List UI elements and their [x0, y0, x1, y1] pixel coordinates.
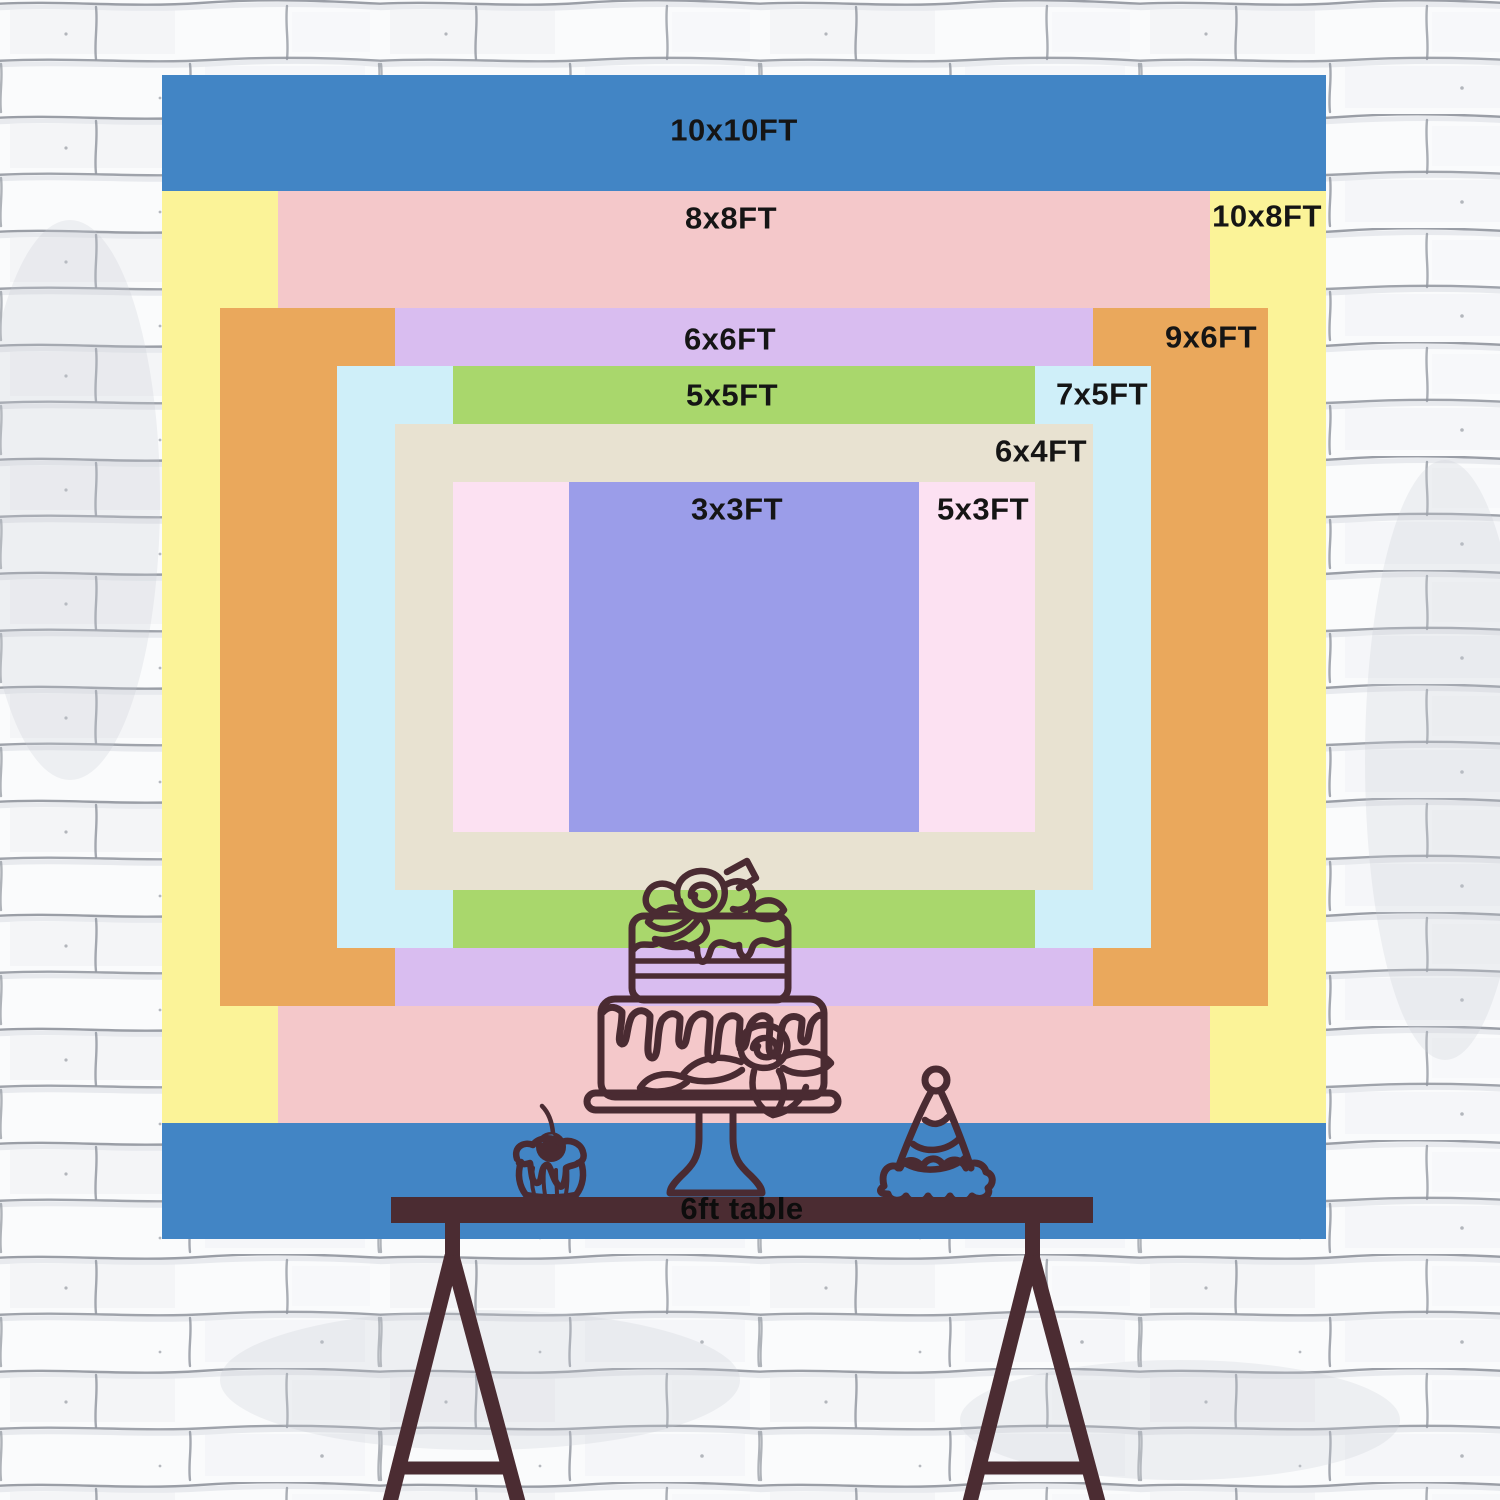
backdrop-size-chart: 10x10FT10x8FT8x8FT9x6FT6x6FT7x5FT5x5FT6x… — [0, 0, 1500, 1500]
table-size-label: 6ft table — [391, 1194, 1093, 1224]
cake-stand-stem — [670, 1110, 762, 1193]
cherry-stem — [542, 1106, 553, 1133]
party-hat-icon — [881, 1069, 993, 1202]
birthday-cake-icon — [587, 861, 838, 1193]
cake-top-lines — [636, 961, 784, 976]
trestle-table — [390, 1197, 1098, 1500]
cupcake-icon — [516, 1106, 583, 1197]
table-left-stub — [445, 1222, 460, 1260]
table-and-decor-illustration — [0, 0, 1500, 1500]
table-right-stub — [1025, 1222, 1040, 1260]
hat-pompom — [925, 1069, 947, 1091]
cake-rose — [646, 861, 784, 947]
